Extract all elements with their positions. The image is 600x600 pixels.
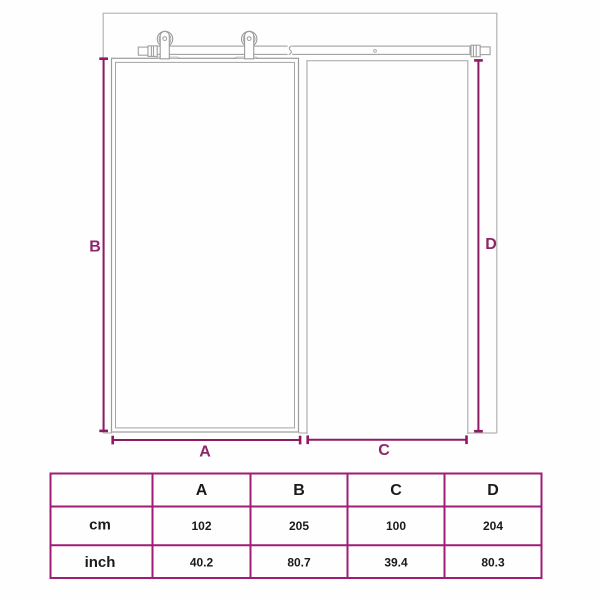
svg-text:39.4: 39.4 (384, 555, 408, 569)
svg-text:cm: cm (89, 517, 111, 534)
svg-text:B: B (89, 239, 101, 256)
svg-text:D: D (487, 482, 499, 499)
svg-text:80.3: 80.3 (481, 555, 505, 569)
svg-text:C: C (390, 482, 402, 499)
svg-text:205: 205 (289, 519, 309, 533)
svg-text:B: B (293, 482, 305, 499)
svg-text:40.2: 40.2 (190, 555, 214, 569)
svg-text:C: C (378, 442, 390, 459)
svg-text:D: D (485, 236, 497, 253)
svg-text:100: 100 (386, 519, 406, 533)
svg-text:A: A (199, 444, 211, 461)
svg-text:A: A (196, 482, 208, 499)
svg-text:80.7: 80.7 (287, 555, 311, 569)
svg-text:inch: inch (85, 554, 116, 571)
svg-text:204: 204 (483, 519, 503, 533)
svg-text:102: 102 (191, 519, 211, 533)
